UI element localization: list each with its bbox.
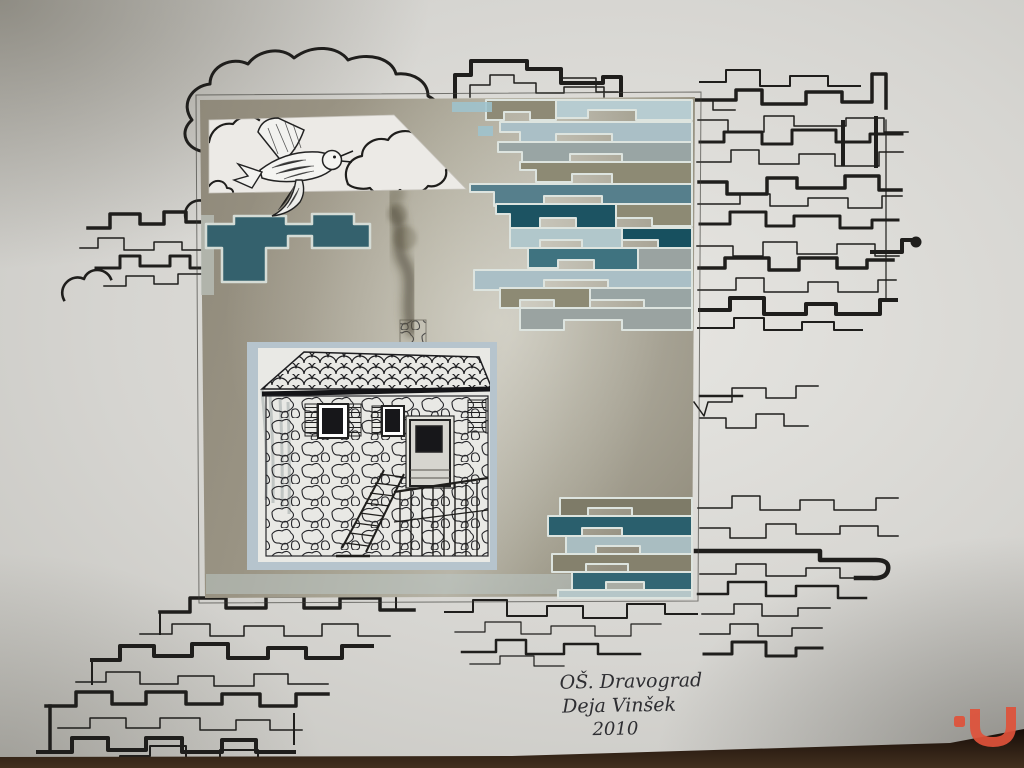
bird-head xyxy=(323,151,342,170)
signature-year: 2010 xyxy=(591,718,638,740)
photo-of-artwork: OŠ. Dravograd Deja Vinšek 2010 xyxy=(0,0,1024,768)
house-drawing xyxy=(262,352,492,556)
bottom-left-maze-pattern xyxy=(38,576,427,768)
window-left xyxy=(305,404,361,438)
signature-school: OŠ. Dravograd xyxy=(559,668,702,693)
left-maze-pattern xyxy=(80,212,206,286)
window-middle xyxy=(372,406,404,436)
table-edge xyxy=(0,729,1024,768)
signature: OŠ. Dravograd Deja Vinšek 2010 xyxy=(559,668,703,740)
house-paper xyxy=(247,342,497,570)
right-maze-pattern xyxy=(696,70,922,330)
door xyxy=(406,416,454,488)
watermark-icon xyxy=(954,712,1011,742)
window-right-shutter xyxy=(468,400,486,432)
below-board-maze-pattern xyxy=(445,600,697,666)
mid-right-maze-pattern xyxy=(694,386,818,428)
bird-eye xyxy=(333,156,336,159)
signature-author: Deja Vinšek xyxy=(561,694,676,718)
bottom-right-maze-pattern xyxy=(696,496,898,656)
artwork-canvas: OŠ. Dravograd Deja Vinšek 2010 xyxy=(0,0,1024,768)
